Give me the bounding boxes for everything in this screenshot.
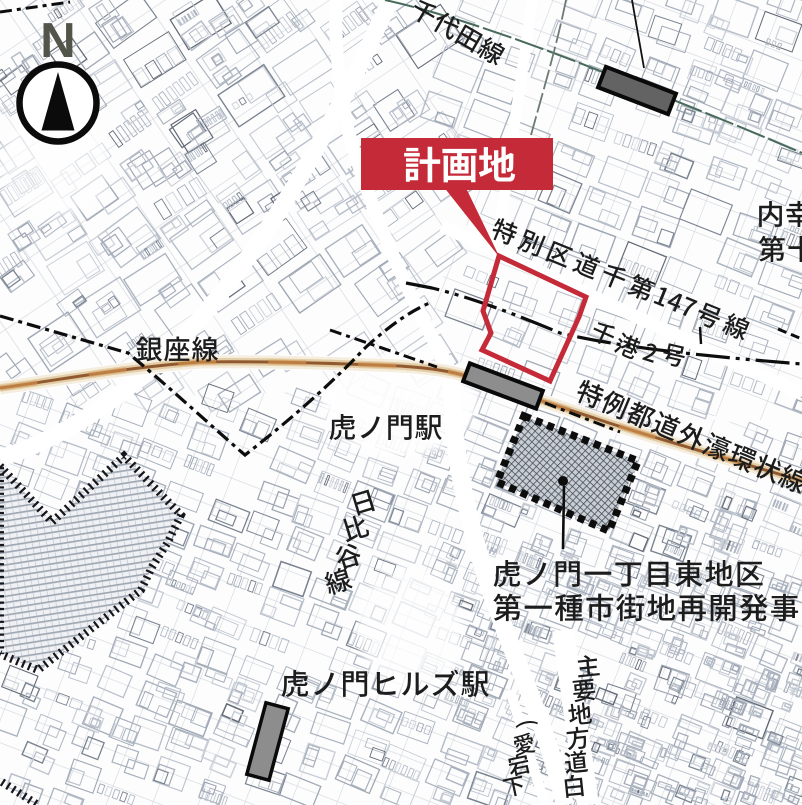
svg-text:N: N — [40, 14, 75, 68]
